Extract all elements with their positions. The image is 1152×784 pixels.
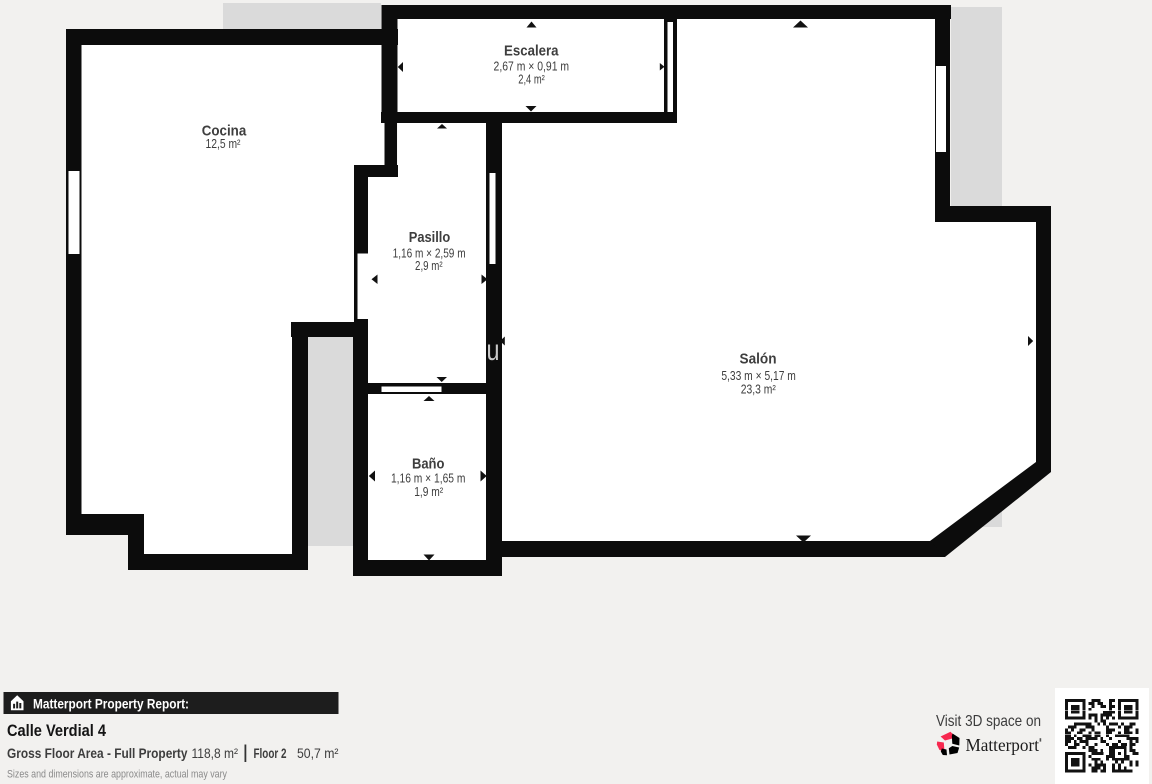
svg-text:50,7 m²: 50,7 m² — [297, 745, 339, 761]
svg-text:118,8 m²: 118,8 m² — [192, 745, 239, 761]
svg-text:12,5 m²: 12,5 m² — [206, 136, 242, 151]
svg-text:2,4 m²: 2,4 m² — [518, 71, 545, 86]
svg-text:Pasillo: Pasillo — [409, 229, 451, 246]
svg-text:1,9 m²: 1,9 m² — [414, 484, 444, 499]
svg-text:Floor 2: Floor 2 — [254, 745, 287, 761]
svg-text:Escalera: Escalera — [504, 43, 559, 60]
svg-text:u: u — [487, 334, 500, 367]
svg-text:Sizes and dimensions are appro: Sizes and dimensions are approximate, ac… — [7, 769, 227, 781]
svg-text:Calle Verdial 4: Calle Verdial 4 — [7, 721, 106, 740]
svg-text:Visit 3D space on: Visit 3D space on — [936, 713, 1041, 730]
svg-text:Matterport: Matterport — [966, 735, 1040, 755]
svg-text:Salón: Salón — [740, 351, 777, 368]
svg-text:2,9 m²: 2,9 m² — [415, 258, 443, 273]
svg-text:Gross Floor Area - Full Proper: Gross Floor Area - Full Property — [7, 745, 188, 761]
svg-text:Matterport Property Report:: Matterport Property Report: — [33, 696, 189, 712]
svg-text:23,3 m²: 23,3 m² — [741, 382, 777, 397]
